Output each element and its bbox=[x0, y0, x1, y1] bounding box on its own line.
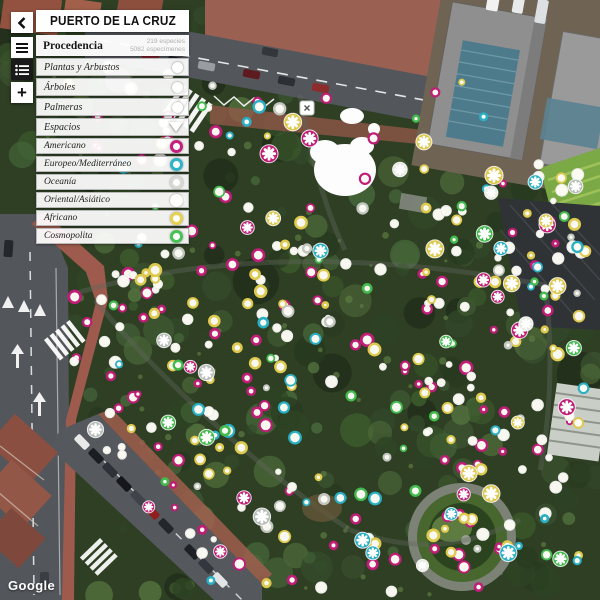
plant-marker-americano[interactable] bbox=[140, 314, 148, 322]
plant-marker-oriental-asiatico[interactable] bbox=[195, 142, 204, 151]
plant-marker-africano[interactable] bbox=[476, 464, 486, 474]
species-cluster-marker-europeo-mediterraneo[interactable] bbox=[500, 544, 517, 561]
filter-arboles[interactable]: Árboles bbox=[36, 78, 189, 96]
plant-marker-africano[interactable] bbox=[250, 358, 260, 368]
plant-marker-oriental-asiatico[interactable] bbox=[452, 247, 461, 256]
species-cluster-marker-oriental-asiatico[interactable] bbox=[519, 317, 533, 331]
species-cluster-marker-cosmopolita[interactable] bbox=[566, 341, 581, 356]
plant-marker-oriental-asiatico[interactable] bbox=[70, 357, 78, 365]
plant-marker-oriental-asiatico[interactable] bbox=[467, 372, 475, 380]
category-africano[interactable]: Africano bbox=[36, 210, 189, 226]
plant-marker-africano[interactable] bbox=[401, 424, 407, 430]
menu-button[interactable] bbox=[11, 37, 33, 58]
plant-marker-europeo-mediterraneo[interactable] bbox=[572, 242, 582, 252]
plant-marker-africano[interactable] bbox=[574, 311, 585, 322]
plant-marker-africano[interactable] bbox=[413, 354, 423, 364]
plant-marker-africano[interactable] bbox=[423, 269, 429, 275]
plant-marker-americano[interactable] bbox=[390, 554, 401, 565]
plant-marker-americano[interactable] bbox=[476, 440, 487, 451]
plant-marker-oriental-asiatico[interactable] bbox=[441, 206, 451, 216]
plant-marker-oriental-asiatico[interactable] bbox=[244, 203, 253, 212]
plant-marker-africano[interactable] bbox=[443, 403, 453, 413]
zoom-in-button[interactable]: + bbox=[11, 82, 33, 103]
plant-marker-africano[interactable] bbox=[281, 241, 289, 249]
category-ring-icon[interactable] bbox=[170, 194, 183, 207]
plant-marker-americano[interactable] bbox=[306, 267, 316, 277]
legend-button[interactable] bbox=[11, 59, 33, 80]
category-oriental-asiatico[interactable]: Oriental/Asiático bbox=[36, 192, 189, 208]
plant-marker-oceania[interactable] bbox=[209, 82, 216, 89]
species-cluster-marker-americano[interactable] bbox=[301, 130, 318, 147]
plant-marker-oceania[interactable] bbox=[325, 317, 334, 326]
plant-marker-oceania[interactable] bbox=[505, 342, 511, 348]
species-cluster-marker-oceania[interactable] bbox=[198, 364, 214, 380]
plant-marker-cosmopolita[interactable] bbox=[267, 355, 274, 362]
plant-marker-africano[interactable] bbox=[318, 270, 329, 281]
plant-marker-oriental-asiatico[interactable] bbox=[183, 314, 193, 324]
plant-marker-africano[interactable] bbox=[442, 526, 448, 532]
plant-marker-americano[interactable] bbox=[401, 362, 409, 370]
plant-marker-americano[interactable] bbox=[491, 327, 497, 333]
category-europeo-mediterraneo[interactable]: Europeo/Mediterráneo bbox=[36, 156, 189, 172]
plant-marker-cosmopolita[interactable] bbox=[162, 479, 168, 485]
plant-marker-africano[interactable] bbox=[447, 548, 456, 557]
plant-marker-oriental-asiatico[interactable] bbox=[537, 435, 547, 445]
plant-marker-europeo-mediterraneo[interactable] bbox=[303, 499, 309, 505]
plant-marker-oriental-asiatico[interactable] bbox=[446, 362, 452, 368]
small-square-marker[interactable] bbox=[300, 101, 314, 115]
plant-marker-africano[interactable] bbox=[428, 296, 435, 303]
species-cluster-marker-oriental-asiatico[interactable] bbox=[416, 559, 428, 571]
plant-marker-oceania[interactable] bbox=[494, 265, 504, 275]
plant-marker-africano[interactable] bbox=[323, 302, 328, 307]
category-ring-icon[interactable] bbox=[170, 176, 183, 189]
species-cluster-marker-europeo-mediterraneo[interactable] bbox=[494, 241, 508, 255]
plant-marker-oriental-asiatico[interactable] bbox=[316, 582, 327, 593]
plant-marker-americano[interactable] bbox=[369, 133, 379, 143]
plant-marker-oriental-asiatico[interactable] bbox=[468, 384, 475, 391]
species-cluster-marker-americano[interactable] bbox=[237, 491, 251, 505]
plant-marker-oceania[interactable] bbox=[195, 483, 201, 489]
species-cluster-marker-americano[interactable] bbox=[143, 501, 155, 513]
plant-marker-americano[interactable] bbox=[330, 542, 337, 549]
plant-marker-oriental-asiatico[interactable] bbox=[186, 529, 195, 538]
species-cluster-marker-africano[interactable] bbox=[461, 465, 478, 482]
plant-marker-europeo-mediterraneo[interactable] bbox=[116, 361, 122, 367]
plant-marker-africano[interactable] bbox=[128, 425, 135, 432]
plant-marker-oriental-asiatico[interactable] bbox=[507, 309, 514, 316]
plant-marker-africano[interactable] bbox=[477, 394, 485, 402]
plant-marker-oriental-asiatico[interactable] bbox=[161, 250, 169, 258]
plant-marker-africano[interactable] bbox=[251, 270, 260, 279]
plant-marker-africano[interactable] bbox=[204, 469, 214, 479]
plant-marker-americano[interactable] bbox=[260, 419, 272, 431]
plant-marker-cosmopolita[interactable] bbox=[430, 412, 438, 420]
species-cluster-marker-europeo-mediterraneo[interactable] bbox=[355, 532, 371, 548]
plant-marker-oriental-asiatico[interactable] bbox=[282, 331, 293, 342]
species-cluster-marker-oriental-asiatico[interactable] bbox=[393, 162, 408, 177]
filter-palmeras[interactable]: Palmeras bbox=[36, 98, 189, 116]
species-cluster-marker-europeo-mediterraneo[interactable] bbox=[528, 175, 542, 189]
plant-marker-americano[interactable] bbox=[195, 381, 201, 387]
plant-marker-cosmopolita[interactable] bbox=[411, 486, 421, 496]
plant-marker-oriental-asiatico[interactable] bbox=[534, 160, 543, 169]
species-cluster-marker-cosmopolita[interactable] bbox=[440, 335, 453, 348]
plant-marker-oceania[interactable] bbox=[568, 235, 573, 240]
plant-marker-oriental-asiatico[interactable] bbox=[553, 253, 564, 264]
plant-marker-cosmopolita[interactable] bbox=[347, 391, 356, 400]
plant-marker-americano[interactable] bbox=[252, 336, 261, 345]
plant-marker-africano[interactable] bbox=[557, 173, 566, 182]
plant-marker-oriental-asiatico[interactable] bbox=[380, 364, 387, 371]
species-cluster-marker-oceania[interactable] bbox=[157, 333, 172, 348]
plant-marker-cosmopolita[interactable] bbox=[413, 116, 419, 122]
plant-marker-oriental-asiatico[interactable] bbox=[468, 437, 477, 446]
species-cluster-marker-africano[interactable] bbox=[511, 416, 524, 429]
plant-marker-oriental-asiatico[interactable] bbox=[541, 285, 549, 293]
plant-marker-cosmopolita[interactable] bbox=[391, 402, 402, 413]
plant-marker-cosmopolita[interactable] bbox=[355, 489, 366, 500]
plant-marker-europeo-mediterraneo[interactable] bbox=[285, 375, 296, 386]
plant-marker-americano[interactable] bbox=[135, 391, 140, 396]
category-ring-icon[interactable] bbox=[170, 212, 183, 225]
plant-marker-africano[interactable] bbox=[243, 299, 252, 308]
plant-marker-oriental-asiatico[interactable] bbox=[228, 149, 235, 156]
filter-espacios[interactable]: Espacios bbox=[36, 118, 189, 136]
species-cluster-marker-americano[interactable] bbox=[184, 360, 197, 373]
species-cluster-marker-americano[interactable] bbox=[260, 145, 278, 163]
plant-marker-africano[interactable] bbox=[447, 436, 454, 443]
plant-marker-europeo-mediterraneo[interactable] bbox=[369, 493, 381, 505]
plant-marker-europeo-mediterraneo[interactable] bbox=[311, 334, 321, 344]
plant-marker-americano[interactable] bbox=[142, 288, 153, 299]
plant-marker-americano[interactable] bbox=[351, 341, 360, 350]
plant-marker-oriental-asiatico[interactable] bbox=[118, 444, 125, 451]
species-cluster-marker-europeo-mediterraneo[interactable] bbox=[313, 243, 328, 258]
plant-marker-americano[interactable] bbox=[119, 304, 126, 311]
plant-marker-oriental-asiatico[interactable] bbox=[559, 473, 568, 482]
plant-marker-americano[interactable] bbox=[360, 174, 370, 184]
plant-marker-americano[interactable] bbox=[458, 561, 469, 572]
plant-marker-oriental-asiatico[interactable] bbox=[204, 407, 214, 417]
section-procedencia[interactable]: Procedencia 219 especies 5082 especímene… bbox=[36, 35, 189, 56]
plant-marker-americano[interactable] bbox=[322, 94, 331, 103]
plant-marker-cosmopolita[interactable] bbox=[451, 237, 457, 243]
plant-marker-oriental-asiatico[interactable] bbox=[116, 323, 124, 331]
plant-marker-americano[interactable] bbox=[155, 443, 162, 450]
plant-marker-oriental-asiatico[interactable] bbox=[532, 399, 543, 410]
plant-marker-africano[interactable] bbox=[279, 531, 290, 542]
plant-marker-oceania[interactable] bbox=[173, 248, 183, 258]
plant-marker-oriental-asiatico[interactable] bbox=[460, 302, 469, 311]
plant-marker-oriental-asiatico[interactable] bbox=[546, 454, 553, 461]
plant-marker-cosmopolita[interactable] bbox=[458, 202, 466, 210]
plant-marker-oriental-asiatico[interactable] bbox=[550, 481, 562, 493]
plant-marker-americano[interactable] bbox=[210, 126, 221, 137]
plant-marker-americano[interactable] bbox=[172, 505, 178, 511]
species-cluster-marker-cosmopolita[interactable] bbox=[199, 429, 215, 445]
plant-marker-europeo-mediterraneo[interactable] bbox=[516, 543, 522, 549]
plant-marker-africano[interactable] bbox=[150, 264, 161, 275]
plant-marker-americano[interactable] bbox=[227, 259, 237, 269]
plant-marker-cosmopolita[interactable] bbox=[542, 550, 551, 559]
plant-marker-oriental-asiatico[interactable] bbox=[147, 423, 156, 432]
plant-marker-oceania[interactable] bbox=[319, 494, 329, 504]
filter-plantas-y-arbustos[interactable]: Plantas y Arbustos bbox=[36, 58, 189, 76]
plant-marker-africano[interactable] bbox=[275, 362, 285, 372]
species-cluster-marker-africano[interactable] bbox=[416, 134, 432, 150]
plant-marker-oriental-asiatico[interactable] bbox=[519, 466, 527, 474]
plant-marker-africano[interactable] bbox=[150, 309, 159, 318]
species-cluster-marker-oceania[interactable] bbox=[87, 422, 103, 438]
plant-marker-cosmopolita[interactable] bbox=[174, 361, 183, 370]
plant-marker-europeo-mediterraneo[interactable] bbox=[243, 118, 250, 125]
plant-marker-oceania[interactable] bbox=[283, 306, 294, 317]
species-cluster-marker-africano[interactable] bbox=[284, 113, 302, 131]
category-oceania[interactable]: Oceanía bbox=[36, 174, 189, 190]
plant-marker-americano[interactable] bbox=[69, 291, 81, 303]
plant-marker-cosmopolita[interactable] bbox=[221, 426, 230, 435]
category-ring-icon[interactable] bbox=[170, 230, 183, 243]
plant-marker-africano[interactable] bbox=[550, 345, 556, 351]
plant-marker-oriental-asiatico[interactable] bbox=[341, 259, 351, 269]
category-americano[interactable]: Americano bbox=[36, 138, 189, 154]
plant-marker-americano[interactable] bbox=[288, 576, 296, 584]
plant-marker-oriental-asiatico[interactable] bbox=[390, 220, 398, 228]
plant-marker-oriental-asiatico[interactable] bbox=[505, 520, 515, 530]
plant-marker-africano[interactable] bbox=[255, 286, 266, 297]
plant-marker-oriental-asiatico[interactable] bbox=[477, 528, 489, 540]
species-cluster-marker-oceania[interactable] bbox=[253, 508, 270, 525]
plant-marker-oriental-asiatico[interactable] bbox=[273, 242, 282, 251]
plant-marker-oriental-asiatico[interactable] bbox=[386, 586, 396, 596]
plant-marker-americano[interactable] bbox=[351, 515, 360, 524]
plant-marker-africano[interactable] bbox=[452, 215, 461, 224]
plant-marker-americano[interactable] bbox=[500, 449, 506, 455]
plant-marker-americano[interactable] bbox=[253, 250, 264, 261]
plant-marker-oriental-asiatico[interactable] bbox=[105, 409, 114, 418]
plant-marker-europeo-mediterraneo[interactable] bbox=[279, 403, 289, 413]
plant-marker-americano[interactable] bbox=[441, 456, 449, 464]
species-cluster-marker-africano[interactable] bbox=[485, 166, 503, 184]
plant-marker-cosmopolita[interactable] bbox=[214, 187, 224, 197]
plant-marker-americano[interactable] bbox=[260, 401, 269, 410]
plant-marker-oriental-asiatico[interactable] bbox=[288, 483, 297, 492]
species-cluster-marker-africano[interactable] bbox=[266, 211, 281, 226]
plant-marker-africano[interactable] bbox=[224, 468, 230, 474]
plant-marker-cosmopolita[interactable] bbox=[110, 302, 118, 310]
plant-marker-oceania[interactable] bbox=[384, 454, 391, 461]
plant-marker-americano[interactable] bbox=[314, 296, 322, 304]
plant-marker-cosmopolita[interactable] bbox=[401, 446, 407, 452]
plant-marker-oriental-asiatico[interactable] bbox=[211, 537, 216, 542]
plant-marker-americano[interactable] bbox=[509, 229, 516, 236]
plant-marker-americano[interactable] bbox=[248, 388, 255, 395]
plant-marker-americano[interactable] bbox=[368, 560, 377, 569]
plant-marker-oceania[interactable] bbox=[303, 245, 311, 253]
species-cluster-marker-africano[interactable] bbox=[549, 278, 566, 295]
plant-marker-oriental-asiatico[interactable] bbox=[326, 376, 338, 388]
plant-marker-oriental-asiatico[interactable] bbox=[103, 447, 110, 454]
plant-marker-africano[interactable] bbox=[569, 219, 579, 229]
species-cluster-marker-europeo-mediterraneo[interactable] bbox=[366, 546, 380, 560]
plant-marker-cosmopolita[interactable] bbox=[532, 279, 538, 285]
plant-marker-americano[interactable] bbox=[475, 584, 482, 591]
plant-marker-americano[interactable] bbox=[234, 558, 245, 569]
plant-marker-oriental-asiatico[interactable] bbox=[273, 324, 281, 332]
plant-marker-africano[interactable] bbox=[191, 437, 199, 445]
plant-marker-americano[interactable] bbox=[481, 407, 487, 413]
species-cluster-marker-europeo-mediterraneo[interactable] bbox=[445, 508, 458, 521]
plant-marker-africano[interactable] bbox=[236, 442, 247, 453]
plant-marker-africano[interactable] bbox=[209, 316, 219, 326]
plant-marker-africano[interactable] bbox=[459, 80, 464, 85]
species-cluster-marker-americano[interactable] bbox=[457, 488, 470, 501]
plant-marker-americano[interactable] bbox=[500, 408, 509, 417]
plant-marker-oceania[interactable] bbox=[574, 291, 579, 296]
plant-marker-oriental-asiatico[interactable] bbox=[118, 276, 129, 287]
plant-marker-africano[interactable] bbox=[233, 344, 241, 352]
plant-marker-oriental-asiatico[interactable] bbox=[205, 341, 212, 348]
plant-marker-europeo-mediterraneo[interactable] bbox=[542, 515, 548, 521]
plant-marker-africano[interactable] bbox=[216, 444, 223, 451]
plant-marker-oriental-asiatico[interactable] bbox=[453, 394, 464, 405]
plant-marker-oceania[interactable] bbox=[275, 501, 285, 511]
plant-marker-africano[interactable] bbox=[524, 210, 531, 217]
plant-marker-oriental-asiatico[interactable] bbox=[572, 169, 584, 181]
plant-marker-cosmopolita[interactable] bbox=[198, 102, 206, 110]
plant-marker-oriental-asiatico[interactable] bbox=[290, 247, 297, 254]
plant-marker-oriental-asiatico[interactable] bbox=[437, 379, 445, 387]
plant-marker-africano[interactable] bbox=[195, 455, 205, 465]
plant-marker-americano[interactable] bbox=[171, 482, 176, 487]
species-cluster-marker-cosmopolita[interactable] bbox=[553, 551, 568, 566]
plant-marker-africano[interactable] bbox=[574, 418, 584, 428]
toggle-circle-icon[interactable] bbox=[172, 102, 183, 113]
species-cluster-marker-africano[interactable] bbox=[539, 214, 553, 228]
plant-marker-europeo-mediterraneo[interactable] bbox=[193, 404, 204, 415]
plant-marker-africano[interactable] bbox=[188, 298, 197, 307]
plant-marker-europeo-mediterraneo[interactable] bbox=[480, 114, 487, 121]
plant-marker-europeo-mediterraneo[interactable] bbox=[579, 383, 589, 393]
plant-marker-oceania[interactable] bbox=[274, 103, 285, 114]
plant-marker-americano[interactable] bbox=[107, 372, 115, 380]
plant-marker-oriental-asiatico[interactable] bbox=[512, 266, 521, 275]
plant-marker-africano[interactable] bbox=[528, 253, 534, 259]
plant-marker-africano[interactable] bbox=[263, 579, 270, 586]
category-ring-icon[interactable] bbox=[170, 158, 183, 171]
plant-marker-cosmopolita[interactable] bbox=[363, 284, 371, 292]
plant-marker-oceania[interactable] bbox=[264, 385, 269, 390]
plant-marker-americano[interactable] bbox=[431, 88, 439, 96]
plant-marker-africano[interactable] bbox=[265, 133, 270, 138]
species-cluster-marker-oceania[interactable] bbox=[568, 179, 583, 194]
plant-marker-americano[interactable] bbox=[533, 445, 543, 455]
plant-marker-africano[interactable] bbox=[460, 514, 469, 523]
plant-marker-americano[interactable] bbox=[199, 526, 206, 533]
plant-marker-oriental-asiatico[interactable] bbox=[197, 548, 207, 558]
species-cluster-marker-africano[interactable] bbox=[482, 485, 500, 503]
species-cluster-marker-cosmopolita[interactable] bbox=[476, 226, 493, 243]
plant-marker-africano[interactable] bbox=[490, 277, 500, 287]
plant-marker-africano[interactable] bbox=[428, 530, 439, 541]
species-cluster-marker-africano[interactable] bbox=[503, 275, 520, 292]
plant-marker-europeo-mediterraneo[interactable] bbox=[533, 263, 542, 272]
back-button[interactable] bbox=[11, 12, 33, 33]
species-cluster-marker-americano[interactable] bbox=[491, 290, 504, 303]
plant-marker-oriental-asiatico[interactable] bbox=[97, 295, 107, 305]
plant-marker-americano[interactable] bbox=[210, 243, 216, 249]
plant-marker-oriental-asiatico[interactable] bbox=[425, 377, 432, 384]
plant-marker-americano[interactable] bbox=[437, 277, 447, 287]
species-cluster-marker-americano[interactable] bbox=[558, 399, 575, 416]
plant-marker-oceania[interactable] bbox=[475, 546, 481, 552]
species-cluster-marker-cosmopolita[interactable] bbox=[161, 415, 176, 430]
plant-marker-europeo-mediterraneo[interactable] bbox=[254, 101, 265, 112]
plant-marker-oriental-asiatico[interactable] bbox=[423, 429, 430, 436]
plant-marker-africano[interactable] bbox=[422, 204, 430, 212]
plant-marker-americano[interactable] bbox=[243, 374, 251, 382]
category-ring-icon[interactable] bbox=[170, 140, 183, 153]
plant-marker-americano[interactable] bbox=[431, 545, 439, 553]
plant-marker-oriental-asiatico[interactable] bbox=[551, 198, 556, 203]
category-cosmopolita[interactable]: Cosmopolita bbox=[36, 228, 189, 244]
plant-marker-europeo-mediterraneo[interactable] bbox=[574, 557, 581, 564]
plant-marker-oriental-asiatico[interactable] bbox=[112, 271, 119, 278]
plant-marker-europeo-mediterraneo[interactable] bbox=[491, 426, 499, 434]
plant-marker-oriental-asiatico[interactable] bbox=[171, 343, 180, 352]
plant-marker-europeo-mediterraneo[interactable] bbox=[289, 432, 301, 444]
plant-marker-americano[interactable] bbox=[416, 381, 422, 387]
toggle-circle-icon[interactable] bbox=[172, 62, 183, 73]
plant-marker-americano[interactable] bbox=[198, 267, 206, 275]
plant-marker-europeo-mediterraneo[interactable] bbox=[227, 132, 233, 138]
plant-marker-europeo-mediterraneo[interactable] bbox=[208, 577, 215, 584]
plant-marker-oceania[interactable] bbox=[358, 203, 368, 213]
plant-marker-americano[interactable] bbox=[307, 204, 315, 212]
species-cluster-marker-americano[interactable] bbox=[214, 545, 227, 558]
plant-marker-americano[interactable] bbox=[83, 318, 91, 326]
plant-marker-africano[interactable] bbox=[295, 217, 306, 228]
plant-marker-cosmopolita[interactable] bbox=[560, 212, 569, 221]
plant-marker-europeo-mediterraneo[interactable] bbox=[259, 318, 268, 327]
plant-marker-americano[interactable] bbox=[115, 404, 123, 412]
plant-marker-americano[interactable] bbox=[553, 241, 558, 246]
plant-marker-cosmopolita[interactable] bbox=[541, 293, 548, 300]
species-cluster-marker-oriental-asiatico[interactable] bbox=[485, 186, 498, 199]
species-cluster-marker-americano[interactable] bbox=[241, 221, 255, 235]
plant-marker-oriental-asiatico[interactable] bbox=[100, 337, 110, 347]
plant-marker-americano[interactable] bbox=[211, 329, 220, 338]
plant-marker-americano[interactable] bbox=[173, 455, 184, 466]
plant-marker-oriental-asiatico[interactable] bbox=[118, 451, 126, 459]
plant-marker-africano[interactable] bbox=[420, 165, 428, 173]
plant-marker-europeo-mediterraneo[interactable] bbox=[336, 493, 346, 503]
plant-marker-africano[interactable] bbox=[369, 344, 381, 356]
species-cluster-marker-americano[interactable] bbox=[476, 273, 490, 287]
plant-marker-africano[interactable] bbox=[542, 327, 548, 333]
toggle-circle-icon[interactable] bbox=[172, 82, 183, 93]
plant-marker-americano[interactable] bbox=[543, 306, 552, 315]
plant-marker-oriental-asiatico[interactable] bbox=[556, 184, 568, 196]
plant-marker-africano[interactable] bbox=[316, 475, 322, 481]
species-cluster-marker-africano[interactable] bbox=[426, 240, 444, 258]
plant-marker-oriental-asiatico[interactable] bbox=[375, 264, 386, 275]
chevron-down-icon[interactable] bbox=[169, 122, 183, 132]
plant-marker-africano[interactable] bbox=[420, 388, 429, 397]
plant-marker-africano[interactable] bbox=[136, 275, 145, 284]
plant-marker-oriental-asiatico[interactable] bbox=[276, 469, 281, 474]
